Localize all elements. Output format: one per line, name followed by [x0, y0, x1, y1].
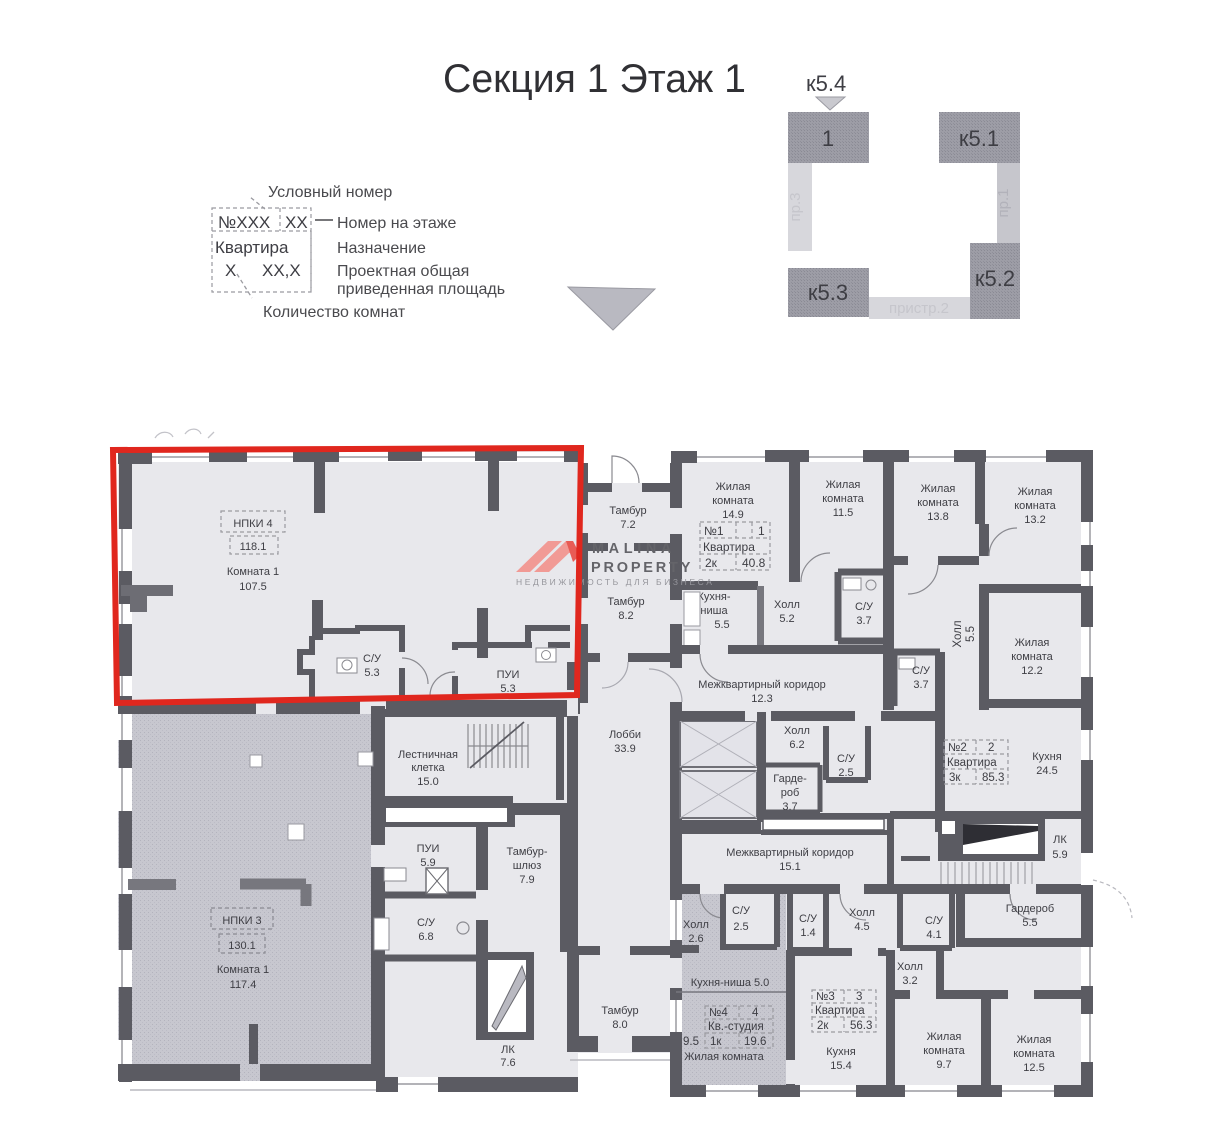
svg-text:PROPERTY: PROPERTY [591, 560, 693, 576]
svg-text:2к: 2к [705, 556, 718, 570]
svg-text:XX,X: XX,X [262, 261, 301, 280]
svg-text:Жилая: Жилая [716, 481, 751, 493]
svg-text:5.3: 5.3 [364, 667, 379, 679]
svg-text:6.8: 6.8 [418, 931, 433, 943]
svg-text:14.9: 14.9 [722, 509, 743, 521]
svg-text:ЛК: ЛК [501, 1044, 515, 1056]
svg-text:Номер на этаже: Номер на этаже [337, 215, 456, 232]
svg-text:НПКИ 3: НПКИ 3 [222, 915, 261, 927]
svg-text:2.5: 2.5 [733, 921, 748, 933]
svg-text:пр.1: пр.1 [995, 189, 1012, 218]
svg-text:3.7: 3.7 [782, 801, 797, 813]
svg-text:к5.1: к5.1 [959, 126, 999, 151]
svg-text:12.5: 12.5 [1023, 1062, 1044, 1074]
svg-text:2.5: 2.5 [838, 767, 853, 779]
svg-text:3.2: 3.2 [902, 975, 917, 987]
svg-text:№4: №4 [709, 1007, 728, 1019]
svg-text:комната: комната [923, 1045, 965, 1057]
svg-text:Жилая: Жилая [826, 479, 861, 491]
svg-text:Жилая комната: Жилая комната [684, 1051, 764, 1063]
svg-text:Холл: Холл [849, 907, 875, 919]
svg-text:Квартира: Квартира [703, 540, 755, 554]
svg-text:Холл: Холл [784, 725, 810, 737]
svg-text:15.1: 15.1 [779, 861, 800, 873]
svg-text:Квартира: Квартира [815, 1005, 865, 1017]
svg-text:11.5: 11.5 [833, 507, 854, 519]
svg-text:4.1: 4.1 [926, 929, 941, 941]
svg-text:№1: №1 [704, 524, 724, 538]
svg-text:Жилая: Жилая [1018, 486, 1053, 498]
svg-text:5.2: 5.2 [779, 613, 794, 625]
svg-text:5.9: 5.9 [420, 857, 435, 869]
svg-text:С/У: С/У [363, 653, 382, 665]
svg-text:12.2: 12.2 [1021, 665, 1042, 677]
svg-text:комната: комната [712, 495, 754, 507]
svg-text:XX: XX [285, 213, 308, 232]
svg-text:24.5: 24.5 [1036, 765, 1057, 777]
svg-text:3к: 3к [949, 772, 961, 784]
svg-text:№3: №3 [816, 991, 835, 1003]
svg-text:1к: 1к [710, 1036, 722, 1048]
svg-text:ПУИ: ПУИ [497, 669, 520, 681]
svg-text:2.6: 2.6 [688, 933, 703, 945]
svg-text:8.0: 8.0 [612, 1019, 627, 1031]
svg-text:№XXX: №XXX [218, 213, 270, 232]
svg-text:С/У: С/У [912, 665, 931, 677]
svg-text:MALINA: MALINA [592, 541, 676, 557]
svg-text:Гарде-: Гарде- [773, 773, 807, 785]
svg-text:Количество комнат: Количество комнат [263, 304, 406, 321]
svg-text:Условный номер: Условный номер [268, 184, 392, 201]
svg-text:6.2: 6.2 [789, 739, 804, 751]
svg-text:5.5: 5.5 [1022, 917, 1037, 929]
svg-text:130.1: 130.1 [228, 940, 256, 952]
svg-text:Кухня-: Кухня- [697, 591, 730, 603]
svg-text:2: 2 [988, 742, 994, 754]
svg-text:3: 3 [856, 991, 862, 1003]
svg-text:107.5: 107.5 [239, 581, 267, 593]
svg-text:приведенная площадь: приведенная площадь [337, 281, 505, 298]
svg-text:комната: комната [1011, 651, 1053, 663]
svg-text:Тамбур: Тамбур [607, 596, 644, 608]
svg-text:ниша: ниша [700, 605, 728, 617]
svg-text:Квартира: Квартира [215, 238, 289, 257]
svg-text:Лестничная: Лестничная [398, 749, 458, 761]
svg-text:13.8: 13.8 [927, 511, 948, 523]
svg-text:15.4: 15.4 [830, 1060, 851, 1072]
svg-text:13.2: 13.2 [1024, 514, 1045, 526]
svg-text:8.2: 8.2 [618, 610, 633, 622]
svg-text:117.4: 117.4 [230, 979, 257, 991]
svg-text:9.5: 9.5 [683, 1036, 699, 1048]
svg-text:Жилая: Жилая [921, 483, 956, 495]
svg-text:комната: комната [1014, 500, 1056, 512]
svg-text:НПКИ 4: НПКИ 4 [233, 518, 272, 530]
svg-text:С/У: С/У [417, 917, 436, 929]
svg-text:5.5: 5.5 [965, 626, 977, 642]
svg-text:Лобби: Лобби [609, 729, 641, 741]
svg-text:Кухня-ниша 5.0: Кухня-ниша 5.0 [691, 977, 770, 989]
svg-text:Межквартирный коридор: Межквартирный коридор [726, 847, 854, 859]
svg-text:1.4: 1.4 [800, 927, 815, 939]
svg-text:Кухня: Кухня [826, 1046, 855, 1058]
svg-text:Холл: Холл [683, 919, 709, 931]
svg-text:1: 1 [822, 126, 834, 151]
svg-text:1: 1 [758, 524, 765, 538]
svg-text:Холл: Холл [897, 961, 923, 973]
svg-text:40.8: 40.8 [742, 556, 766, 570]
svg-text:4: 4 [752, 1007, 759, 1019]
svg-text:С/У: С/У [855, 601, 874, 613]
svg-text:7.2: 7.2 [620, 519, 635, 531]
svg-text:комната: комната [1013, 1048, 1055, 1060]
svg-text:Квартира: Квартира [947, 757, 997, 769]
svg-text:роб: роб [781, 787, 800, 799]
svg-text:пр.3: пр.3 [787, 193, 804, 222]
svg-text:комната: комната [822, 493, 864, 505]
svg-text:15.0: 15.0 [417, 776, 438, 788]
svg-text:Гардероб: Гардероб [1006, 903, 1054, 915]
svg-text:118.1: 118.1 [240, 541, 267, 553]
svg-text:Комната 1: Комната 1 [217, 964, 269, 976]
svg-text:33.9: 33.9 [614, 743, 635, 755]
svg-text:5.9: 5.9 [1052, 849, 1067, 861]
svg-text:Секция 1 Этаж 1: Секция 1 Этаж 1 [443, 57, 746, 101]
svg-text:Тамбур: Тамбур [609, 505, 646, 517]
svg-text:7.6: 7.6 [500, 1057, 515, 1069]
svg-text:С/У: С/У [732, 905, 751, 917]
svg-text:85.3: 85.3 [982, 772, 1004, 784]
svg-text:Тамбур: Тамбур [601, 1005, 638, 1017]
svg-text:Жилая: Жилая [1015, 637, 1050, 649]
svg-text:к5.3: к5.3 [808, 280, 848, 305]
svg-text:С/У: С/У [799, 913, 818, 925]
svg-text:12.3: 12.3 [751, 693, 772, 705]
svg-text:С/У: С/У [837, 753, 856, 765]
svg-text:комната: комната [917, 497, 959, 509]
svg-text:клетка: клетка [411, 762, 445, 774]
svg-text:пристр.2: пристр.2 [889, 300, 949, 317]
svg-text:Холл: Холл [774, 599, 800, 611]
svg-text:Проектная общая: Проектная общая [337, 263, 469, 280]
svg-text:2к: 2к [817, 1020, 829, 1032]
svg-text:№2: №2 [948, 742, 967, 754]
svg-text:Жилая: Жилая [1017, 1034, 1052, 1046]
svg-text:Комната 1: Комната 1 [227, 566, 279, 578]
svg-text:4.5: 4.5 [854, 921, 869, 933]
svg-text:7.9: 7.9 [519, 874, 534, 886]
svg-text:X: X [225, 261, 236, 280]
svg-text:к5.2: к5.2 [975, 266, 1015, 291]
svg-text:56.3: 56.3 [850, 1020, 872, 1032]
svg-text:Жилая: Жилая [927, 1031, 962, 1043]
svg-text:Назначение: Назначение [337, 240, 426, 257]
svg-text:шлюз: шлюз [513, 860, 542, 872]
svg-text:5.5: 5.5 [714, 619, 729, 631]
svg-text:3.7: 3.7 [913, 679, 928, 691]
svg-text:Межквартирный коридор: Межквартирный коридор [698, 679, 826, 691]
svg-text:ПУИ: ПУИ [417, 843, 440, 855]
svg-text:19.6: 19.6 [744, 1036, 766, 1048]
svg-text:к5.4: к5.4 [806, 71, 846, 96]
svg-text:НЕДВИЖИМОСТЬ ДЛЯ БИЗНЕСА: НЕДВИЖИМОСТЬ ДЛЯ БИЗНЕСА [516, 577, 714, 587]
svg-text:9.7: 9.7 [936, 1059, 951, 1071]
svg-text:С/У: С/У [925, 915, 944, 927]
svg-text:Тамбур-: Тамбур- [507, 846, 548, 858]
svg-text:3.7: 3.7 [856, 615, 871, 627]
svg-text:Холл: Холл [952, 620, 964, 647]
svg-text:Кухня: Кухня [1032, 751, 1061, 763]
svg-text:ЛК: ЛК [1053, 834, 1067, 846]
svg-text:Кв.-студия: Кв.-студия [708, 1021, 764, 1033]
